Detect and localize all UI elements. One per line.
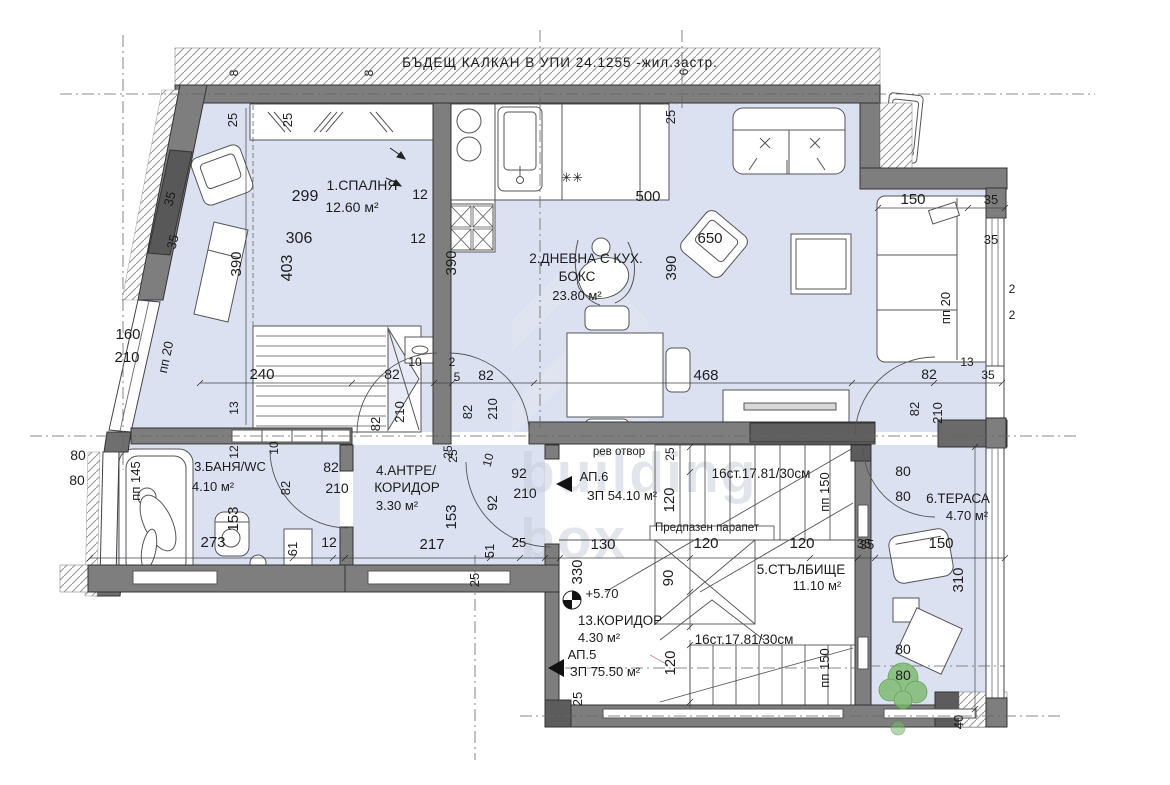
right-couch [877,196,995,362]
dim-25-b: 25 [280,113,295,127]
dim-92-a: 92 [511,465,527,481]
room6-name: 6.ТЕРАСА [926,491,990,506]
room2-name1: 2.ДНЕВНА С КУХ. [529,251,643,266]
dim-61: 61 [285,542,300,556]
window-bath-south [133,571,217,584]
floor-plan-canvas: building box [0,0,1170,785]
room4-name2: КОРИДОР [374,480,440,495]
dim-153-hall: 153 [443,504,460,529]
dim-92-b: 92 [484,495,500,511]
dim-pp145: пп 145 [128,461,143,500]
dim-82-g: 82 [278,481,293,495]
dim-390-bed: 390 [228,251,245,276]
stove [449,204,493,250]
dim-25-i: 25 [570,692,585,706]
room2-area: 23.80 м² [552,288,602,303]
rev-otvor: рев отвор [593,446,645,458]
room1-area: 12.60 м² [325,199,379,215]
dim-pp150-a: пп 150 [817,472,832,511]
dim-80-f: 80 [895,667,911,683]
dim-299: 299 [292,188,319,205]
dim-468: 468 [693,367,718,384]
dim-25-e: 25 [446,449,460,463]
dim-2-a: 2 [449,355,456,369]
dim-pp150-b: пп 150 [817,648,832,687]
room3-area: 4.10 м² [192,479,235,494]
ap6-area: ЗП 54.10 м² [587,488,658,503]
room13-area: 4.30 м² [578,630,621,645]
dim-80-b: 80 [69,472,85,488]
room2-name2: БОКС [559,269,596,284]
dim-35-e: 35 [981,368,995,382]
ap6-name: АП.6 [580,469,609,484]
dim-25-h: 25 [663,447,677,461]
room4-area: 3.30 м² [376,498,419,513]
dim-82-a: 82 [384,366,400,382]
room6-area: 4.70 м² [946,508,989,523]
window-hall-south [368,571,510,584]
dim-35-c: 35 [984,192,998,207]
dim-12-b: 12 [410,230,426,246]
dim-273: 273 [200,534,225,551]
dim-6: 6 [677,68,691,75]
window-corridor-south [603,709,843,718]
dim-13-right: 13 [960,355,974,369]
level-mark-icon [563,591,581,609]
dim-210-e: 210 [325,480,349,496]
dim-35-g: 35 [857,536,871,551]
dim-130: 130 [590,536,615,553]
railing-note: Предпазен парапет [655,522,760,534]
dim-80-e: 80 [895,641,911,657]
stairs-lower-note: 16ст.17.81/30см [695,632,794,647]
room5-area: 11.10 м² [793,578,842,593]
dim-210-a: 210 [114,349,139,366]
window-bathroom [100,452,119,578]
dim-390-kitchen: 390 [443,250,460,275]
dim-120-c: 120 [789,535,814,552]
dim-80-c: 80 [895,463,911,479]
future-wall-title: БЪДЕЩ КАЛКАН В УПИ 24.1255 -жил.застр. [402,55,718,70]
dim-240: 240 [249,366,274,383]
dim-12-a: 12 [412,186,428,202]
level-mark-value: +5.70 [586,586,619,601]
dim-5: 5 [454,370,461,384]
tv-cabinet [723,390,849,422]
dim-12-d: 12 [321,534,337,550]
stairs-upper-note: 16ст.17.81/30см [712,466,811,481]
dim-210-c: 210 [485,398,500,420]
cooktop-marks: ✳✳ [561,170,583,185]
room5-name: 5.СТЪЛБИЩЕ [757,562,846,577]
dim-80-a: 80 [70,447,86,463]
dim-25-f: 25 [512,535,526,550]
dim-2-b: 2 [1009,282,1016,296]
room1-name: 1.СПАЛНЯ [327,177,398,193]
dim-403: 403 [279,255,296,282]
room3-name: 3.БАНЯ/WC [194,459,266,474]
room4-name1: 4.АНТРЕ/ [376,463,436,478]
kitchen-sink [498,107,542,191]
dim-35-d: 35 [984,232,998,247]
dim-82-b: 82 [368,417,383,431]
dim-25-c: 25 [663,110,678,124]
dim-82-c: 82 [478,367,494,383]
dim-120-b: 120 [693,535,718,552]
dim-51: 51 [482,544,497,558]
dim-80-d: 80 [895,488,911,504]
floor-plan-svg: building box [0,0,1170,785]
dim-pp20-right: пп 20 [938,292,953,324]
wardrobe [250,104,435,140]
dim-8-a: 8 [227,69,241,76]
dim-12-c: 12 [227,445,241,459]
dim-210-b: 210 [392,401,407,423]
dim-153-bath: 153 [225,506,242,531]
ap5-name: АП.5 [568,647,597,662]
dim-306: 306 [286,230,313,247]
coffee-table [791,234,851,294]
dim-390-living: 390 [663,255,680,280]
dim-13-left: 13 [227,401,241,415]
dim-82-d: 82 [460,405,475,419]
dim-10-a: 10 [267,441,281,455]
dim-500: 500 [635,188,660,205]
sofa [733,108,845,174]
dim-310: 310 [950,567,967,592]
dim-40: 40 [951,715,966,729]
dim-160: 160 [115,326,140,343]
dim-90: 90 [660,570,677,587]
ap5-area: ЗП 75.50 м² [570,664,641,679]
dim-82-h: 82 [323,459,339,475]
dim-25-g: 25 [467,573,482,587]
dim-150-terrace: 150 [928,535,953,552]
dim-82-f: 82 [907,402,922,416]
dim-150-sofa: 150 [900,191,925,208]
dim-8-b: 8 [362,69,376,76]
dim-217: 217 [419,536,444,553]
dim-2-c: 2 [1009,308,1016,322]
dim-10-b: 10 [408,355,422,369]
dim-120-d: 120 [662,650,679,675]
room13-name: 13.КОРИДОР [578,613,662,628]
dim-25-a: 25 [225,113,240,127]
window-terrace-right [986,448,1004,698]
dim-210-f: 210 [513,485,537,501]
dim-120-a: 120 [661,487,678,512]
dim-650: 650 [697,230,722,247]
dim-330: 330 [569,559,586,584]
dim-82-e: 82 [921,366,937,382]
dim-210-d: 210 [930,402,945,424]
